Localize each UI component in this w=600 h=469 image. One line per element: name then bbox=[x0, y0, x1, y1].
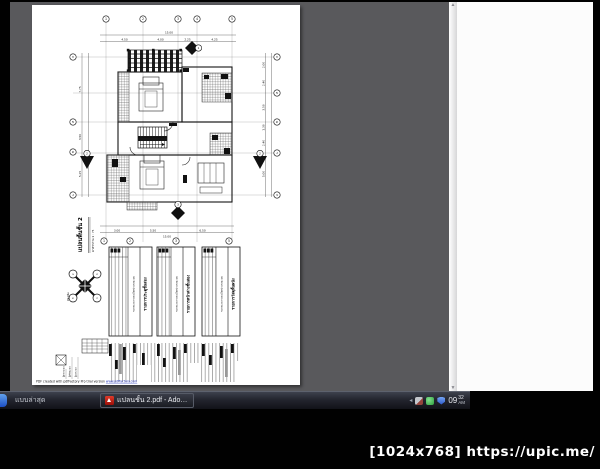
svg-text:15.00: 15.00 bbox=[163, 235, 171, 239]
svg-text:2: 2 bbox=[129, 239, 131, 243]
svg-text:7.75: 7.75 bbox=[78, 86, 82, 92]
volume-icon[interactable] bbox=[415, 397, 423, 405]
taskbar-item-folder[interactable]: แบบล่าสุด bbox=[11, 394, 95, 407]
svg-text:2.40: 2.40 bbox=[262, 80, 266, 86]
svg-text:น: น bbox=[72, 273, 74, 276]
tray-clock[interactable]: 09 32 AM bbox=[448, 396, 465, 406]
svg-text:ผู้เขียนแบบ: ผู้เขียนแบบ bbox=[68, 366, 72, 377]
svg-text:1.30: 1.30 bbox=[262, 124, 266, 130]
clock-hour: 09 bbox=[448, 396, 457, 405]
plan-title-block: แปลนพื้นชั้น 2 มาตราส่วน 1 : 75 bbox=[75, 217, 95, 253]
pdffactory-footer: PDF created with pdfFactory Pro trial ve… bbox=[36, 380, 137, 384]
svg-text:6.50: 6.50 bbox=[199, 228, 205, 232]
svg-text:ผู้ตรวจแบบ: ผู้ตรวจแบบ bbox=[63, 366, 66, 377]
svg-text:ก: ก bbox=[72, 55, 74, 59]
screenshot-canvas: 15.00 4.50 4.00 2.25 4.25 3.00 5.50 6.50… bbox=[0, 0, 600, 469]
antivirus-icon[interactable] bbox=[426, 397, 434, 405]
schedule-rows-lower bbox=[109, 343, 240, 382]
svg-text:ขนาดและรายละเอียดประกอบแบบ: ขนาดและรายละเอียดประกอบแบบ bbox=[175, 276, 179, 312]
svg-text:3.50: 3.50 bbox=[262, 104, 266, 110]
svg-text:ผู้ออกแบบ: ผู้ออกแบบ bbox=[75, 367, 78, 377]
svg-text:3: 3 bbox=[177, 203, 179, 207]
adobe-reader-icon bbox=[105, 396, 114, 405]
taskbar: แบบล่าสุด แปลนชั้น 2.pdf - Adob... ◂ 09 … bbox=[0, 391, 470, 409]
clock-ampm: AM bbox=[458, 401, 465, 406]
compass-label: ทิศเหนือ bbox=[66, 292, 70, 302]
svg-text:1: 1 bbox=[103, 239, 105, 243]
svg-text:2.40: 2.40 bbox=[262, 140, 266, 146]
svg-text:2: 2 bbox=[86, 152, 88, 156]
scroll-up-icon[interactable]: ▲ bbox=[451, 2, 456, 8]
system-tray: ◂ 09 32 AM bbox=[409, 392, 470, 409]
svg-text:4.00: 4.00 bbox=[157, 37, 163, 41]
svg-text:รายการวัสดุพื้นผนัง: รายการวัสดุพื้นผนัง bbox=[230, 278, 237, 310]
taskbar-item-pdf[interactable]: แปลนชั้น 2.pdf - Adob... bbox=[100, 393, 194, 408]
svg-text:ค: ค bbox=[276, 120, 278, 124]
svg-text:15.00: 15.00 bbox=[165, 30, 173, 34]
schedule-table-doors: รายการประตูชั้นสอง ขนาดและรายละเอียดประก… bbox=[109, 247, 152, 336]
pergola-hatch bbox=[127, 49, 182, 72]
svg-text:5.25: 5.25 bbox=[78, 171, 82, 177]
security-shield-icon[interactable] bbox=[437, 397, 445, 405]
svg-text:ค: ค bbox=[72, 150, 74, 154]
svg-text:ขนาดและรายละเอียดประกอบแบบ: ขนาดและรายละเอียดประกอบแบบ bbox=[220, 276, 224, 312]
svg-text:5.00: 5.00 bbox=[262, 171, 266, 177]
svg-text:ข: ข bbox=[276, 91, 278, 95]
svg-text:3: 3 bbox=[177, 17, 179, 21]
background-window bbox=[457, 2, 593, 391]
svg-text:4.50: 4.50 bbox=[121, 37, 127, 41]
svg-text:2: 2 bbox=[142, 17, 144, 21]
start-button[interactable] bbox=[0, 394, 7, 407]
taskbar-item-label: แบบล่าสุด bbox=[15, 395, 45, 406]
stairs bbox=[138, 127, 167, 148]
svg-text:5: 5 bbox=[231, 17, 233, 21]
svg-text:มาตราส่วน 1 : 75: มาตราส่วน 1 : 75 bbox=[91, 229, 95, 252]
svg-text:5: 5 bbox=[228, 239, 230, 243]
compass-rose: น อ ต ก bbox=[69, 270, 101, 302]
svg-text:2.00: 2.00 bbox=[262, 62, 266, 68]
title-block-table: ผู้ออกแบบ ผู้เขียนแบบ ผู้ตรวจแบบ bbox=[56, 339, 108, 379]
svg-text:3: 3 bbox=[175, 239, 177, 243]
svg-text:ขนาดและรายละเอียดประกอบแบบ: ขนาดและรายละเอียดประกอบแบบ bbox=[132, 276, 136, 312]
tray-chevron-icon[interactable]: ◂ bbox=[409, 398, 412, 404]
scrollbar[interactable]: ▲ ▼ bbox=[449, 2, 457, 391]
schedule-table-windows: รายการหน้าต่างชั้นสอง ขนาดและรายละเอียดป… bbox=[157, 247, 195, 336]
svg-text:4: 4 bbox=[196, 17, 198, 21]
taskbar-item-label: แปลนชั้น 2.pdf - Adob... bbox=[117, 395, 189, 406]
pdffactory-link: www.pdffactory.com bbox=[106, 380, 137, 384]
svg-text:2.25: 2.25 bbox=[184, 37, 190, 41]
pdf-viewer-workspace: 15.00 4.50 4.00 2.25 4.25 3.00 5.50 6.50… bbox=[10, 2, 449, 391]
schedule-table-materials: รายการวัสดุพื้นผนัง ขนาดและรายละเอียดประ… bbox=[202, 247, 240, 336]
svg-text:รายการประตูชั้นสอง: รายการประตูชั้นสอง bbox=[142, 277, 149, 311]
svg-text:ก: ก bbox=[276, 55, 278, 59]
svg-text:3.00: 3.00 bbox=[114, 228, 120, 232]
svg-text:แปลนพื้นชั้น 2: แปลนพื้นชั้น 2 bbox=[75, 217, 84, 252]
watermark-text: [1024x768] https://upic.me/ bbox=[369, 444, 595, 460]
svg-text:ข: ข bbox=[72, 120, 74, 124]
svg-text:1: 1 bbox=[198, 46, 200, 50]
svg-text:2: 2 bbox=[259, 152, 261, 156]
svg-text:5.50: 5.50 bbox=[150, 228, 156, 232]
floor-plan-drawing: 15.00 4.50 4.00 2.25 4.25 3.00 5.50 6.50… bbox=[32, 5, 300, 385]
pdf-page: 15.00 4.50 4.00 2.25 4.25 3.00 5.50 6.50… bbox=[32, 5, 300, 385]
svg-text:รายการหน้าต่างชั้นสอง: รายการหน้าต่างชั้นสอง bbox=[185, 275, 191, 313]
svg-text:4.25: 4.25 bbox=[211, 37, 217, 41]
svg-text:จ: จ bbox=[276, 193, 278, 197]
tiled-rooms bbox=[107, 72, 232, 210]
svg-text:3.50: 3.50 bbox=[78, 134, 82, 140]
svg-text:1: 1 bbox=[105, 17, 107, 21]
